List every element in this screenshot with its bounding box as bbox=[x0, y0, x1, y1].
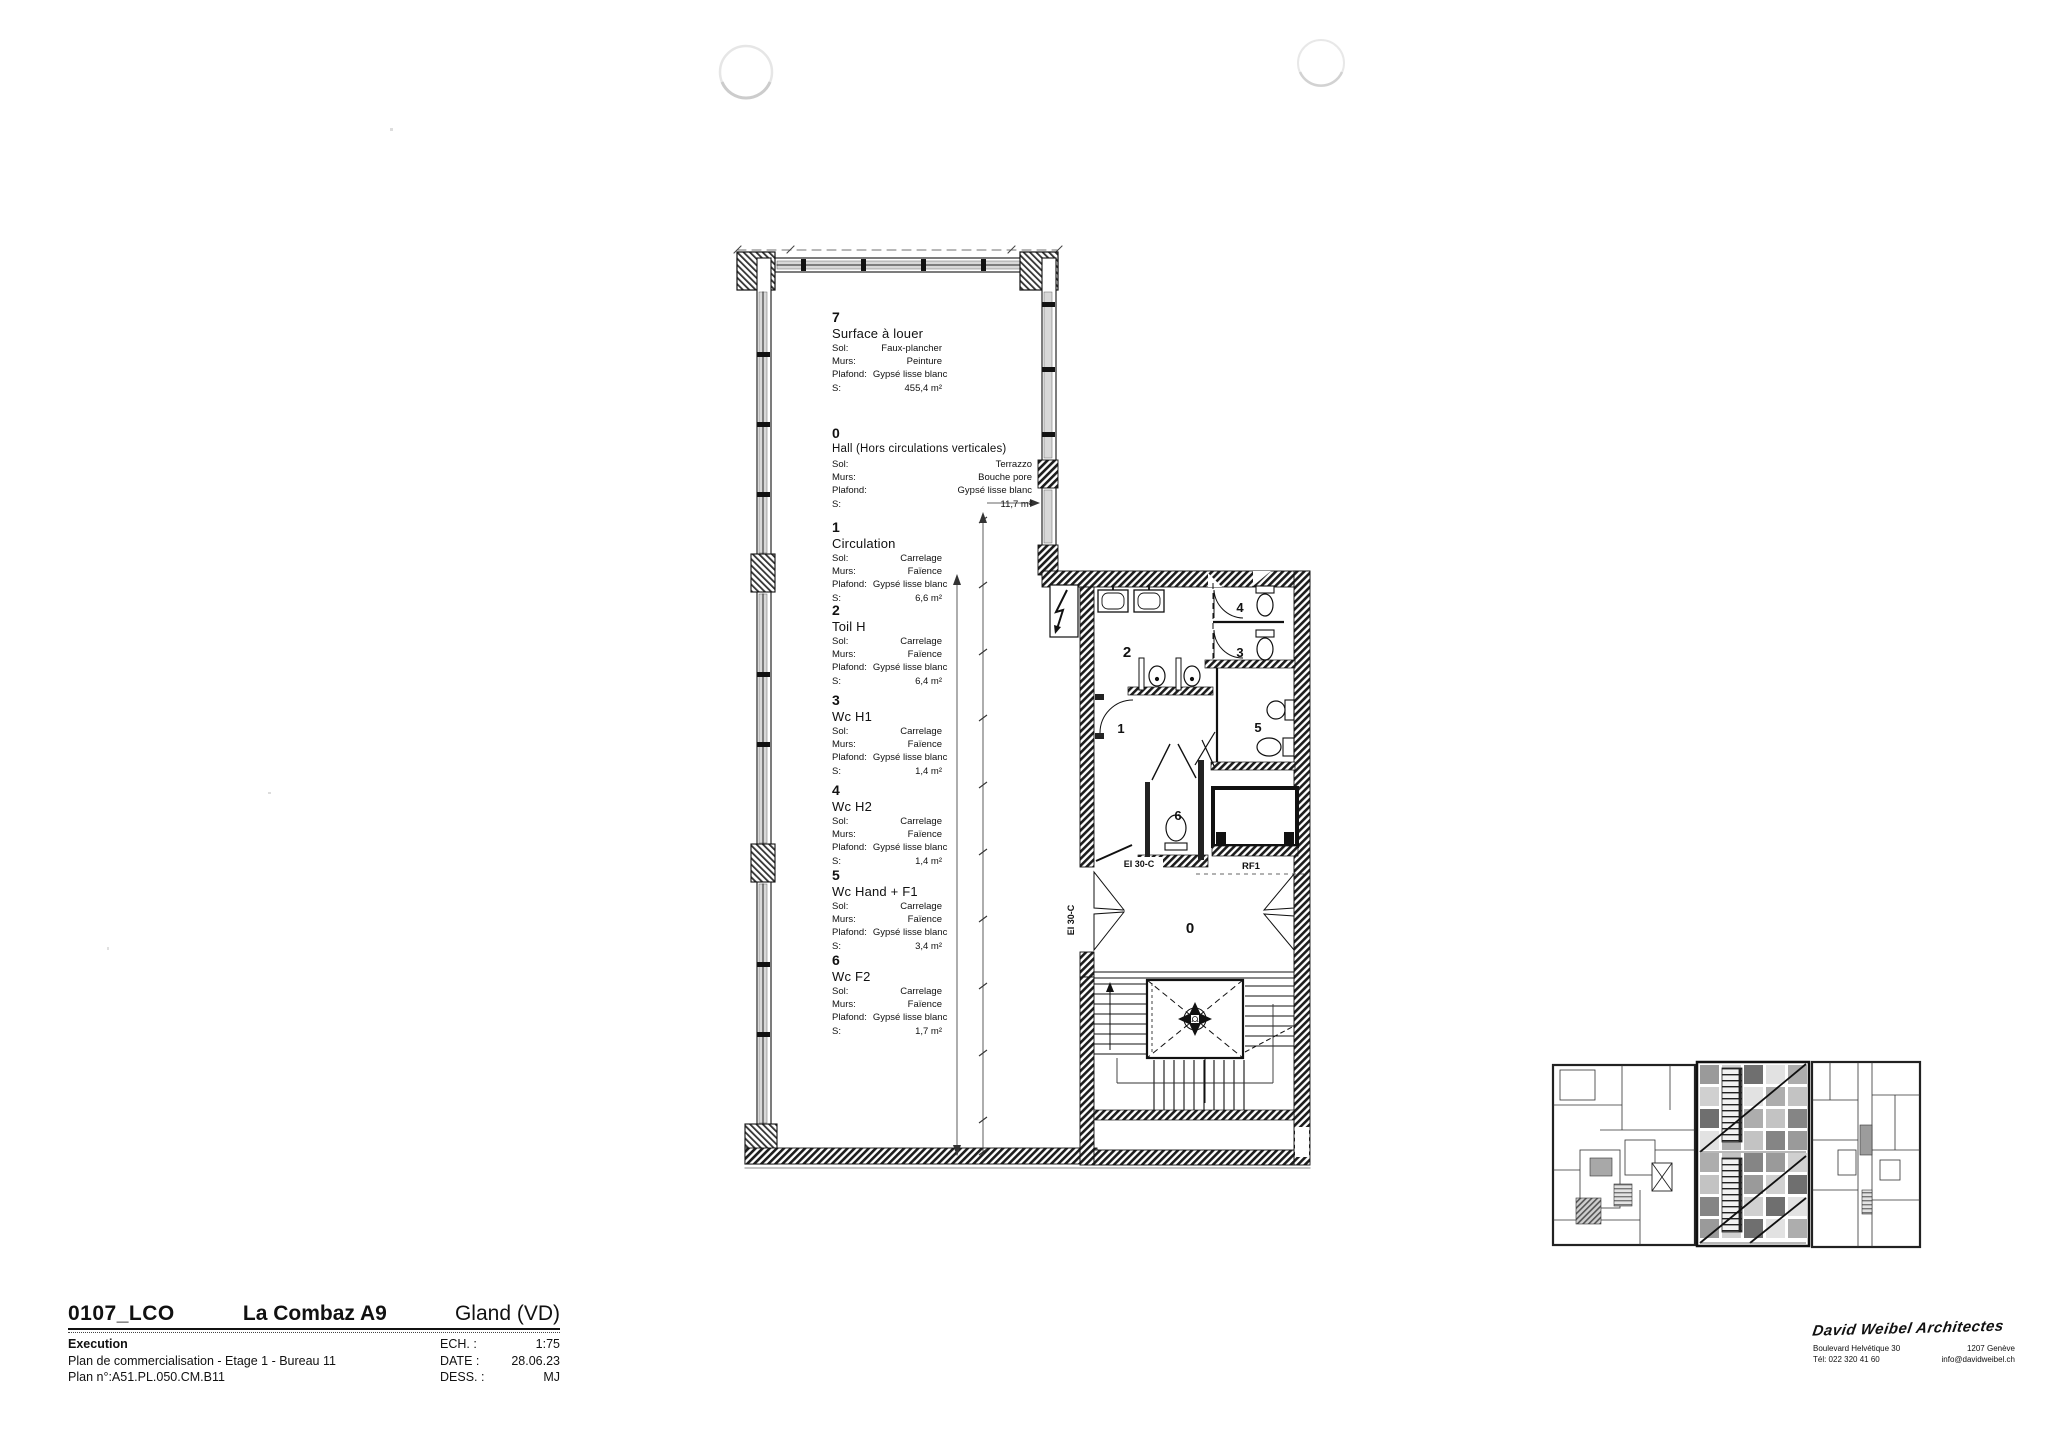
legend-row: Murs:Faïence bbox=[832, 565, 942, 578]
legend-label: S: bbox=[832, 855, 841, 868]
legend-room-number: 4 bbox=[832, 783, 942, 798]
legend-value: Carrelage bbox=[900, 725, 942, 738]
legend-row: Plafond:Gypsé lisse blanc bbox=[832, 841, 942, 854]
legend-label: Sol: bbox=[832, 985, 848, 998]
legend-label: Murs: bbox=[832, 471, 856, 484]
legend-row: Murs:Faïence bbox=[832, 998, 942, 1011]
legend-room-name: Hall (Hors circulations verticales) bbox=[832, 441, 1032, 458]
legend-value: Faïence bbox=[908, 565, 942, 578]
legend-room-1: 1CirculationSol:CarrelageMurs:FaïencePla… bbox=[832, 520, 942, 605]
legend-row: Sol:Terrazzo bbox=[832, 458, 1032, 471]
legend-room-2: 2Toil HSol:CarrelageMurs:FaïencePlafond:… bbox=[832, 603, 942, 688]
project-name: La Combaz A9 bbox=[243, 1302, 387, 1326]
legend-room-number: 7 bbox=[832, 310, 942, 325]
legend-room-7: 7Surface à louerSol:Faux-plancherMurs:Pe… bbox=[832, 310, 942, 395]
legend-label: S: bbox=[832, 765, 841, 778]
date-value: 28.06.23 bbox=[511, 1353, 560, 1370]
legend-room-name: Circulation bbox=[832, 535, 942, 552]
scale-value: 1:75 bbox=[536, 1336, 560, 1353]
legend-row: Plafond:Gypsé lisse blanc bbox=[832, 751, 942, 764]
legend-label: Plafond: bbox=[832, 578, 867, 591]
legend-row: Plafond:Gypsé lisse blanc bbox=[832, 578, 942, 591]
legend-value: Carrelage bbox=[900, 900, 942, 913]
legend-label: Plafond: bbox=[832, 751, 867, 764]
legend-row: Sol:Carrelage bbox=[832, 815, 942, 828]
legend-value: Faïence bbox=[908, 648, 942, 661]
title-block: 0107_LCO La Combaz A9 Gland (VD) Executi… bbox=[68, 1302, 560, 1386]
plan-meta: ECH. :1:75 DATE :28.06.23 DESS. :MJ bbox=[440, 1336, 560, 1386]
legend-value: Peinture bbox=[907, 355, 942, 368]
legend-value: Gypsé lisse blanc bbox=[873, 661, 947, 674]
legend-value: Carrelage bbox=[900, 552, 942, 565]
legend-label: Murs: bbox=[832, 738, 856, 751]
legend-room-name: Wc F2 bbox=[832, 968, 942, 985]
legend-room-3: 3Wc H1Sol:CarrelageMurs:FaïencePlafond:G… bbox=[832, 693, 942, 778]
legend-label: Murs: bbox=[832, 913, 856, 926]
legend-row: Sol:Carrelage bbox=[832, 552, 942, 565]
architect-phone: Tél: 022 320 41 60 bbox=[1813, 1354, 1880, 1365]
legend-value: Faïence bbox=[908, 828, 942, 841]
legend-value: Gypsé lisse blanc bbox=[873, 578, 947, 591]
legend-label: Plafond: bbox=[832, 1011, 867, 1024]
legend-label: Murs: bbox=[832, 998, 856, 1011]
scale-label: ECH. : bbox=[440, 1336, 477, 1353]
legend-value: Bouche pore bbox=[978, 471, 1032, 484]
legend-label: Sol: bbox=[832, 815, 848, 828]
draftsman-label: DESS. : bbox=[440, 1369, 484, 1386]
legend-room-name: Wc H1 bbox=[832, 708, 942, 725]
legend-row: Murs:Faïence bbox=[832, 738, 942, 751]
legend-room-0: 0Hall (Hors circulations verticales)Sol:… bbox=[832, 426, 1032, 511]
legend-room-5: 5Wc Hand + F1Sol:CarrelageMurs:FaïencePl… bbox=[832, 868, 942, 953]
legend-label: Murs: bbox=[832, 565, 856, 578]
legend-value: 3,4 m² bbox=[915, 940, 942, 953]
legend-value: Faux-plancher bbox=[881, 342, 942, 355]
title-rule bbox=[68, 1328, 560, 1333]
legend-label: Plafond: bbox=[832, 661, 867, 674]
legend-room-number: 3 bbox=[832, 693, 942, 708]
architect-address: Boulevard Helvétique 30 bbox=[1813, 1343, 1900, 1354]
legend-label: Murs: bbox=[832, 828, 856, 841]
date-label: DATE : bbox=[440, 1353, 479, 1370]
legend-value: Gypsé lisse blanc bbox=[873, 368, 947, 381]
legend-room-number: 5 bbox=[832, 868, 942, 883]
legend-row: Sol:Carrelage bbox=[832, 985, 942, 998]
legend-room-name: Wc Hand + F1 bbox=[832, 883, 942, 900]
legend-room-number: 0 bbox=[832, 426, 1032, 441]
legend-value: Terrazzo bbox=[996, 458, 1032, 471]
legend-value: 455,4 m² bbox=[905, 382, 943, 395]
legend-row: Murs:Faïence bbox=[832, 828, 942, 841]
legend-value: Gypsé lisse blanc bbox=[958, 484, 1032, 497]
legend-row: S:1,7 m² bbox=[832, 1025, 942, 1038]
legend-value: 1,7 m² bbox=[915, 1025, 942, 1038]
legend-value: Faïence bbox=[908, 913, 942, 926]
legend-label: Sol: bbox=[832, 900, 848, 913]
legend-label: Plafond: bbox=[832, 926, 867, 939]
legend-label: Sol: bbox=[832, 552, 848, 565]
legend-value: Carrelage bbox=[900, 635, 942, 648]
draftsman-value: MJ bbox=[543, 1369, 560, 1386]
legend-value: 11,7 m² bbox=[1000, 498, 1032, 511]
legend-label: Plafond: bbox=[832, 368, 867, 381]
legend-row: Murs:Bouche pore bbox=[832, 471, 1032, 484]
legend-row: Plafond:Gypsé lisse blanc bbox=[832, 1011, 942, 1024]
legend-label: Plafond: bbox=[832, 484, 867, 497]
legend-room-number: 1 bbox=[832, 520, 942, 535]
legend-label: Sol: bbox=[832, 725, 848, 738]
architect-city: 1207 Genève bbox=[1967, 1343, 2015, 1354]
legend-value: Carrelage bbox=[900, 815, 942, 828]
legend-row: Plafond:Gypsé lisse blanc bbox=[832, 484, 1032, 497]
legend-label: S: bbox=[832, 498, 841, 511]
legend-room-name: Wc H2 bbox=[832, 798, 942, 815]
legend-label: Sol: bbox=[832, 342, 848, 355]
legend-label: Murs: bbox=[832, 355, 856, 368]
legend-label: Sol: bbox=[832, 635, 848, 648]
legend-row: Murs:Peinture bbox=[832, 355, 942, 368]
legend-room-name: Toil H bbox=[832, 618, 942, 635]
legend-row: Murs:Faïence bbox=[832, 913, 942, 926]
legend-value: Gypsé lisse blanc bbox=[873, 1011, 947, 1024]
architect-block: David Weibel Architectes Boulevard Helvé… bbox=[1813, 1320, 2015, 1365]
legend-label: S: bbox=[832, 940, 841, 953]
project-code: 0107_LCO bbox=[68, 1302, 175, 1326]
legend-label: S: bbox=[832, 675, 841, 688]
legend-row: S:1,4 m² bbox=[832, 855, 942, 868]
legend-value: 1,4 m² bbox=[915, 855, 942, 868]
legend-value: Faïence bbox=[908, 998, 942, 1011]
room-legend: 7Surface à louerSol:Faux-plancherMurs:Pe… bbox=[0, 0, 2048, 1447]
legend-label: S: bbox=[832, 1025, 841, 1038]
architect-signature: David Weibel Architectes bbox=[1811, 1317, 2016, 1339]
legend-value: 1,4 m² bbox=[915, 765, 942, 778]
scanned-floor-plan-page: 2 4 3 5 6 1 0 EI 30-C EI 30-C RF1 bbox=[0, 0, 2048, 1447]
legend-room-number: 6 bbox=[832, 953, 942, 968]
legend-row: Plafond:Gypsé lisse blanc bbox=[832, 368, 942, 381]
legend-row: S:1,4 m² bbox=[832, 765, 942, 778]
legend-value: Carrelage bbox=[900, 985, 942, 998]
legend-label: Sol: bbox=[832, 458, 848, 471]
legend-row: Plafond:Gypsé lisse blanc bbox=[832, 661, 942, 674]
legend-value: Gypsé lisse blanc bbox=[873, 841, 947, 854]
legend-value: 6,4 m² bbox=[915, 675, 942, 688]
architect-email: info@davidweibel.ch bbox=[1942, 1354, 2016, 1365]
legend-label: Murs: bbox=[832, 648, 856, 661]
legend-row: Murs:Faïence bbox=[832, 648, 942, 661]
legend-value: Faïence bbox=[908, 738, 942, 751]
legend-value: Gypsé lisse blanc bbox=[873, 751, 947, 764]
legend-value: Gypsé lisse blanc bbox=[873, 926, 947, 939]
legend-row: S:455,4 m² bbox=[832, 382, 942, 395]
legend-room-6: 6Wc F2Sol:CarrelageMurs:FaïencePlafond:G… bbox=[832, 953, 942, 1038]
legend-room-name: Surface à louer bbox=[832, 325, 942, 342]
legend-room-4: 4Wc H2Sol:CarrelageMurs:FaïencePlafond:G… bbox=[832, 783, 942, 868]
legend-row: Sol:Carrelage bbox=[832, 900, 942, 913]
legend-row: Sol:Carrelage bbox=[832, 635, 942, 648]
legend-row: Sol:Carrelage bbox=[832, 725, 942, 738]
title-line: 0107_LCO La Combaz A9 Gland (VD) bbox=[68, 1302, 560, 1326]
project-location: Gland (VD) bbox=[455, 1302, 560, 1326]
legend-room-number: 2 bbox=[832, 603, 942, 618]
legend-row: S:11,7 m² bbox=[832, 498, 1032, 511]
legend-row: S:6,4 m² bbox=[832, 675, 942, 688]
legend-label: S: bbox=[832, 382, 841, 395]
legend-row: S:3,4 m² bbox=[832, 940, 942, 953]
legend-row: Plafond:Gypsé lisse blanc bbox=[832, 926, 942, 939]
legend-row: Sol:Faux-plancher bbox=[832, 342, 942, 355]
legend-label: Plafond: bbox=[832, 841, 867, 854]
